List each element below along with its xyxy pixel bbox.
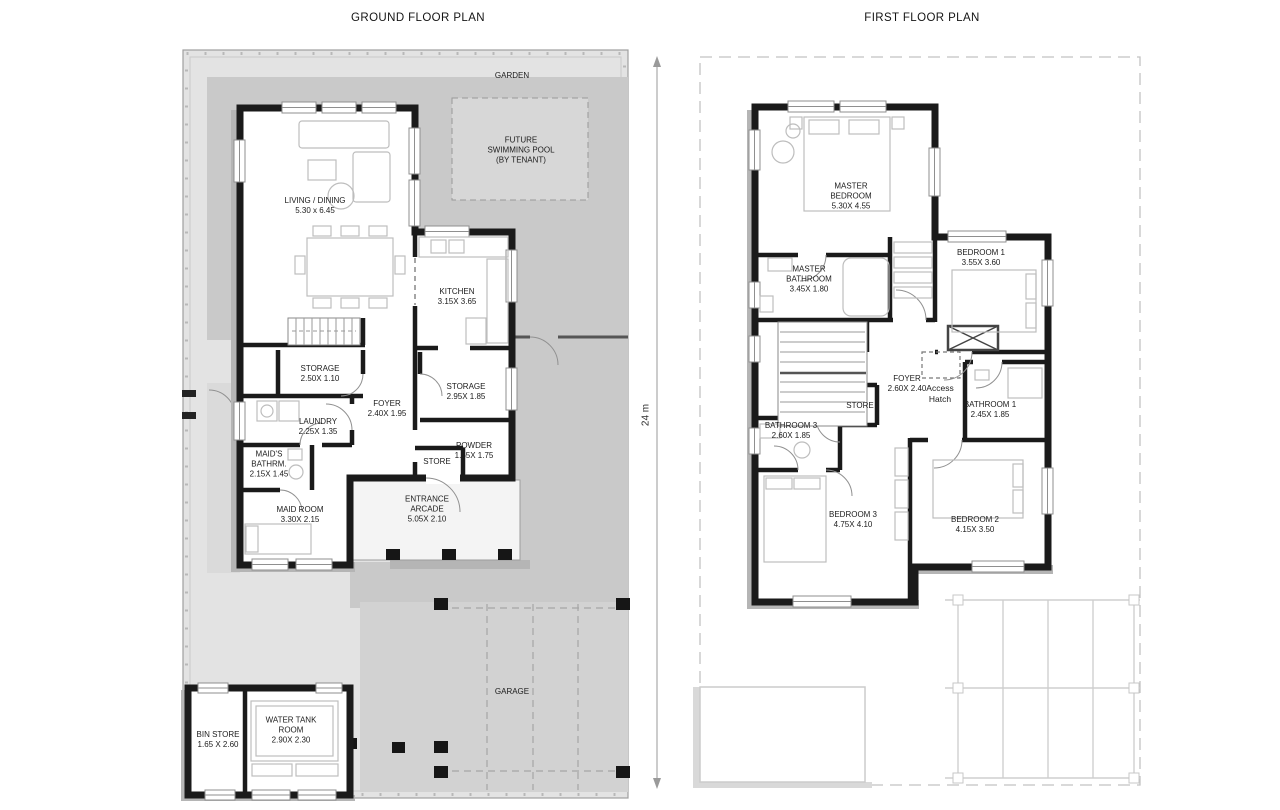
first-stairs: [778, 322, 867, 426]
first-floor-title: FIRST FLOOR PLAN: [864, 12, 979, 24]
entrance-arcade-floor: [352, 480, 520, 560]
ground-floor-title: GROUND FLOOR PLAN: [351, 12, 485, 24]
first-floor-drawing: [693, 57, 1140, 788]
ground-stairs: [288, 318, 360, 345]
bin-water-building: [188, 688, 350, 795]
dimension-label-24m: 24 m: [641, 404, 652, 426]
ground-floor-drawing: [181, 50, 630, 801]
dimension-line-24m: [653, 56, 661, 789]
floor-plan-sheet: GROUND FLOOR PLAN FIRST FLOOR PLAN GARDE…: [0, 0, 1280, 810]
garage-area: [360, 602, 628, 792]
future-pool-area: [452, 98, 588, 200]
